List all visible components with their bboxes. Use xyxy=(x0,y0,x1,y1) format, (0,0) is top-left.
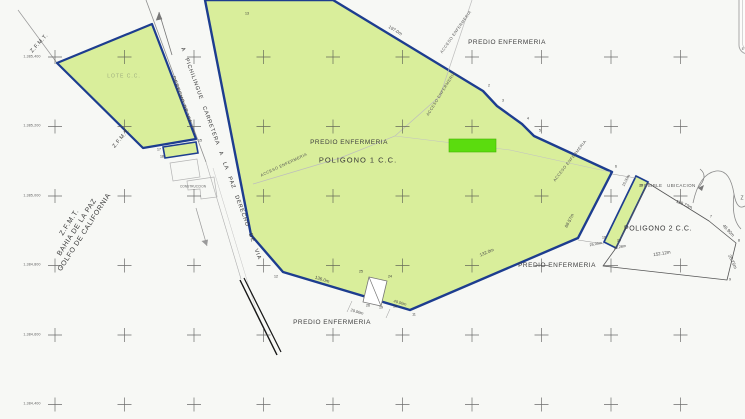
grid-label-row-4: 1,384,600 xyxy=(23,333,40,337)
vertex-5: 5 xyxy=(539,129,541,133)
vertex-9: 9 xyxy=(729,278,731,282)
survey-map-page: Z.F.M.T. Z.F.M.T. Z.F.M.T. BAHIA DE LA P… xyxy=(0,0,745,419)
grid-label-row-0: 1,385,400 xyxy=(23,55,40,59)
vertex-12: 12 xyxy=(274,275,278,279)
label-lote-cc: LOTE C.C. xyxy=(107,75,140,80)
vertex-3: 3 xyxy=(502,99,504,103)
label-posible-ubicacion: POSIBLE UBICACION xyxy=(640,184,695,189)
vertex-2: 2 xyxy=(488,84,490,88)
label-predio-bottom: PREDIO ENFERMERIA xyxy=(293,320,371,327)
label-construccion: CONSTRUCCION xyxy=(180,185,206,188)
vertex-16: 16 xyxy=(602,236,606,240)
label-poligono-1: POLIGONO 1 C.C. xyxy=(319,156,397,164)
label-poligono-2: POLIGONO 2 C.C. xyxy=(624,226,692,233)
vertex-8: 8 xyxy=(738,239,740,243)
label-edge-letter: E xyxy=(742,47,745,51)
vertex-24b: 24 xyxy=(617,239,621,243)
vertex-4: 4 xyxy=(527,117,529,121)
grid-label-row-1: 1,385,200 xyxy=(23,124,40,128)
label-predio-center: PREDIO ENFERMERIA xyxy=(310,140,388,147)
label-predio-top: PREDIO ENFERMERIA xyxy=(468,40,546,47)
vertex-24: 24 xyxy=(388,275,392,279)
vertex-17: 17 xyxy=(157,148,161,152)
vertex-21: 21 xyxy=(639,184,643,188)
grid-label-row-3: 1,384,800 xyxy=(23,263,40,267)
label-predio-right: PREDIO ENFERMERIA xyxy=(518,263,596,270)
vertex-7: 7 xyxy=(710,215,712,219)
vertex-18: 18 xyxy=(160,155,164,159)
vertex-11: 11 xyxy=(412,313,416,317)
grid-label-row-2: 1,385,000 xyxy=(23,194,40,198)
vertex-6: 6 xyxy=(615,165,617,169)
vertex-25: 25 xyxy=(359,270,363,274)
vertex-15: 15 xyxy=(198,139,202,143)
highlight-marker xyxy=(449,139,496,152)
label-coast-mark: Z xyxy=(740,197,743,202)
vertex-10: 10 xyxy=(393,305,397,309)
grid-label-row-5: 1,384,400 xyxy=(23,402,40,406)
vertex-13: 13 xyxy=(245,12,249,16)
vertex-26: 26 xyxy=(366,304,370,308)
map-linework xyxy=(0,0,745,419)
vertex-19: 19 xyxy=(379,306,383,310)
